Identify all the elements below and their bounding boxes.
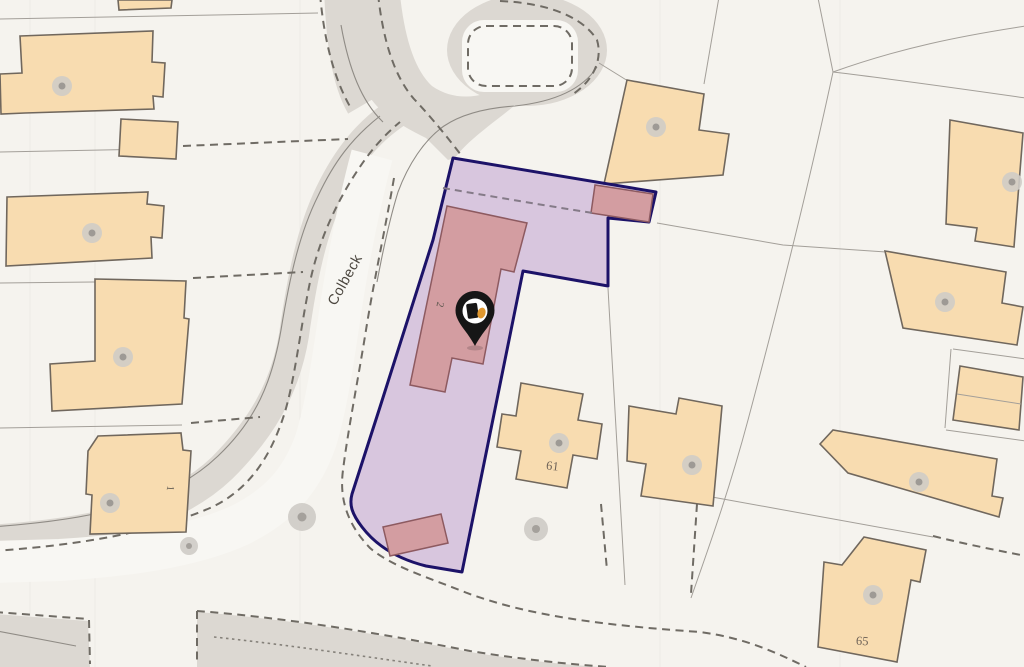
property-layer xyxy=(351,158,656,572)
building-footprint xyxy=(86,433,191,534)
map-svg[interactable]: Colbeck 2 1 61 65 xyxy=(0,0,1024,667)
building-footprint xyxy=(627,398,722,506)
road-bottom-center-fill xyxy=(197,612,600,667)
building-footprint xyxy=(820,430,1003,517)
house-number-label-65: 65 xyxy=(856,634,869,649)
pin-shadow xyxy=(467,346,483,351)
culdesac-island xyxy=(462,20,578,92)
building-footprint xyxy=(0,31,165,114)
building-footprint xyxy=(118,0,172,10)
building-footprint xyxy=(50,279,189,411)
house-number-label-1: 1 xyxy=(164,485,175,491)
map-canvas[interactable]: Colbeck 2 1 61 65 xyxy=(0,0,1024,667)
building-footprint xyxy=(604,80,729,184)
building-footprint xyxy=(953,366,1023,430)
building-footprint xyxy=(119,119,178,159)
house-number-label-61: 61 xyxy=(545,458,559,473)
